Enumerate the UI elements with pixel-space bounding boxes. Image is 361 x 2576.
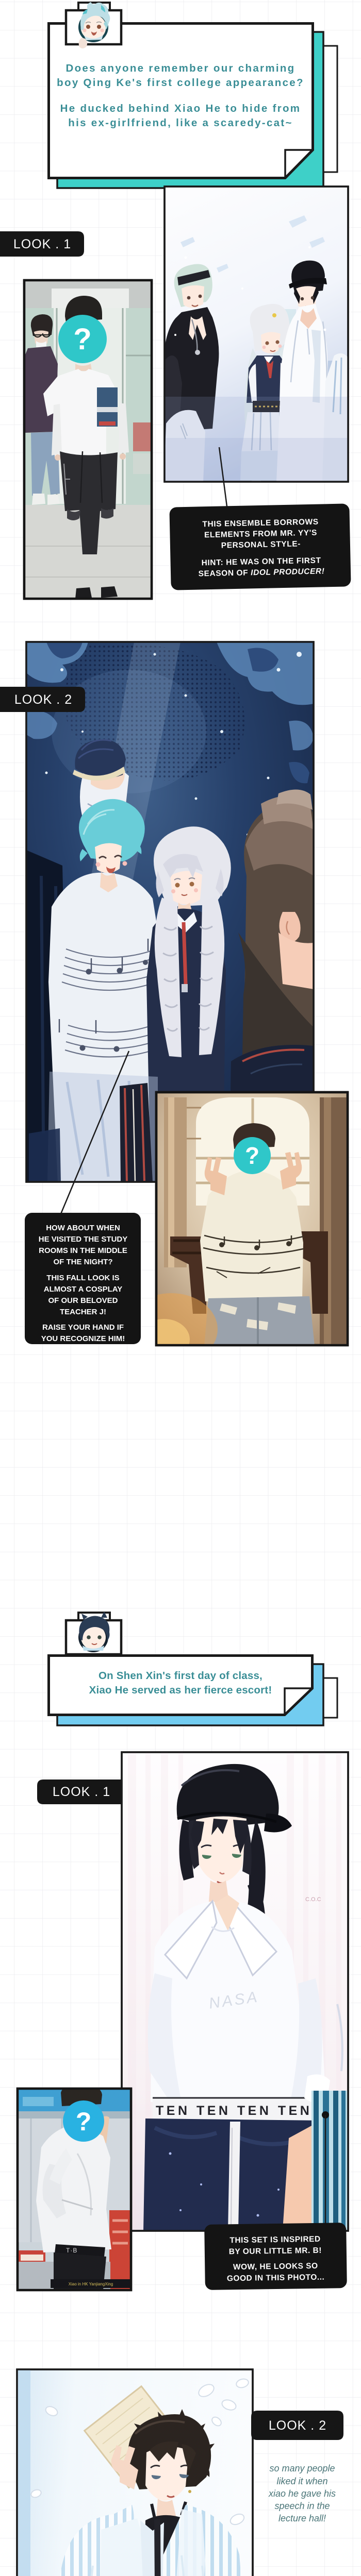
svg-text:Xiao in HK YanjiangXing: Xiao in HK YanjiangXing <box>69 2282 113 2286</box>
svg-text:boy Qing Ke's first college ap: boy Qing Ke's first college appearance? <box>57 77 304 89</box>
svg-text:Xiao He served as her fierce e: Xiao He served as her fierce escort! <box>89 1684 272 1696</box>
svg-text:TEN TEN TEN TEN: TEN TEN TEN TEN <box>156 2104 312 2118</box>
svg-text:WOW, HE LOOKS SO: WOW, HE LOOKS SO <box>233 2262 318 2272</box>
svg-text:HE VISITED THE STUDY: HE VISITED THE STUDY <box>39 1235 128 1244</box>
svg-text:BY OUR LITTLE MR. B!: BY OUR LITTLE MR. B! <box>229 2246 322 2257</box>
svg-text:ALMOST A COSPLAY: ALMOST A COSPLAY <box>44 1285 123 1294</box>
svg-text:THIS SET IS INSPIRED: THIS SET IS INSPIRED <box>229 2235 320 2245</box>
svg-text:liked it when: liked it when <box>276 2476 327 2486</box>
svg-text:YOU RECOGNIZE HIM!: YOU RECOGNIZE HIM! <box>41 1334 125 1343</box>
svg-text:LOOK . 2: LOOK . 2 <box>269 2418 326 2433</box>
svg-text:xiao he gave his: xiao he gave his <box>268 2488 336 2499</box>
svg-text:C.O.C: C.O.C <box>305 1896 321 1903</box>
svg-text:HOW ABOUT WHEN: HOW ABOUT WHEN <box>46 1224 120 1232</box>
svg-text:?: ? <box>76 2107 92 2136</box>
svg-text:OF THE NIGHT?: OF THE NIGHT? <box>54 1258 113 1266</box>
svg-text:speech in the: speech in the <box>274 2501 330 2511</box>
svg-text:GOOD IN THIS PHOTO...: GOOD IN THIS PHOTO... <box>227 2273 325 2283</box>
svg-text:TEACHER J!: TEACHER J! <box>60 1308 106 1316</box>
svg-text:ROOMS IN THE MIDDLE: ROOMS IN THE MIDDLE <box>39 1246 127 1255</box>
svg-text:LOOK . 2: LOOK . 2 <box>14 692 72 707</box>
svg-text:?: ? <box>73 323 91 356</box>
svg-text:LOOK . 1: LOOK . 1 <box>53 1785 110 1799</box>
svg-text:THIS FALL LOOK IS: THIS FALL LOOK IS <box>46 1274 119 1282</box>
svg-text:OF OUR BELOVED: OF OUR BELOVED <box>48 1296 118 1305</box>
svg-text:lecture hall!: lecture hall! <box>278 2513 326 2523</box>
svg-text:LOOK . 1: LOOK . 1 <box>13 237 71 251</box>
svg-text:so many people: so many people <box>269 2463 335 2473</box>
svg-text:?: ? <box>245 1142 259 1169</box>
svg-text:RAISE YOUR HAND IF: RAISE YOUR HAND IF <box>42 1323 124 1332</box>
svg-text:PERSONAL STYLE-: PERSONAL STYLE- <box>221 539 301 550</box>
svg-text:Does anyone remember our charm: Does anyone remember our charming <box>65 62 295 74</box>
svg-text:his ex-girlfriend, like a scar: his ex-girlfriend, like a scaredy-cat~ <box>68 117 293 129</box>
svg-text:He ducked behind Xiao He to hi: He ducked behind Xiao He to hide from <box>60 103 301 114</box>
svg-text:On Shen Xin's first day of cla: On Shen Xin's first day of class, <box>99 1670 262 1682</box>
svg-text:T·B: T·B <box>66 2247 77 2254</box>
